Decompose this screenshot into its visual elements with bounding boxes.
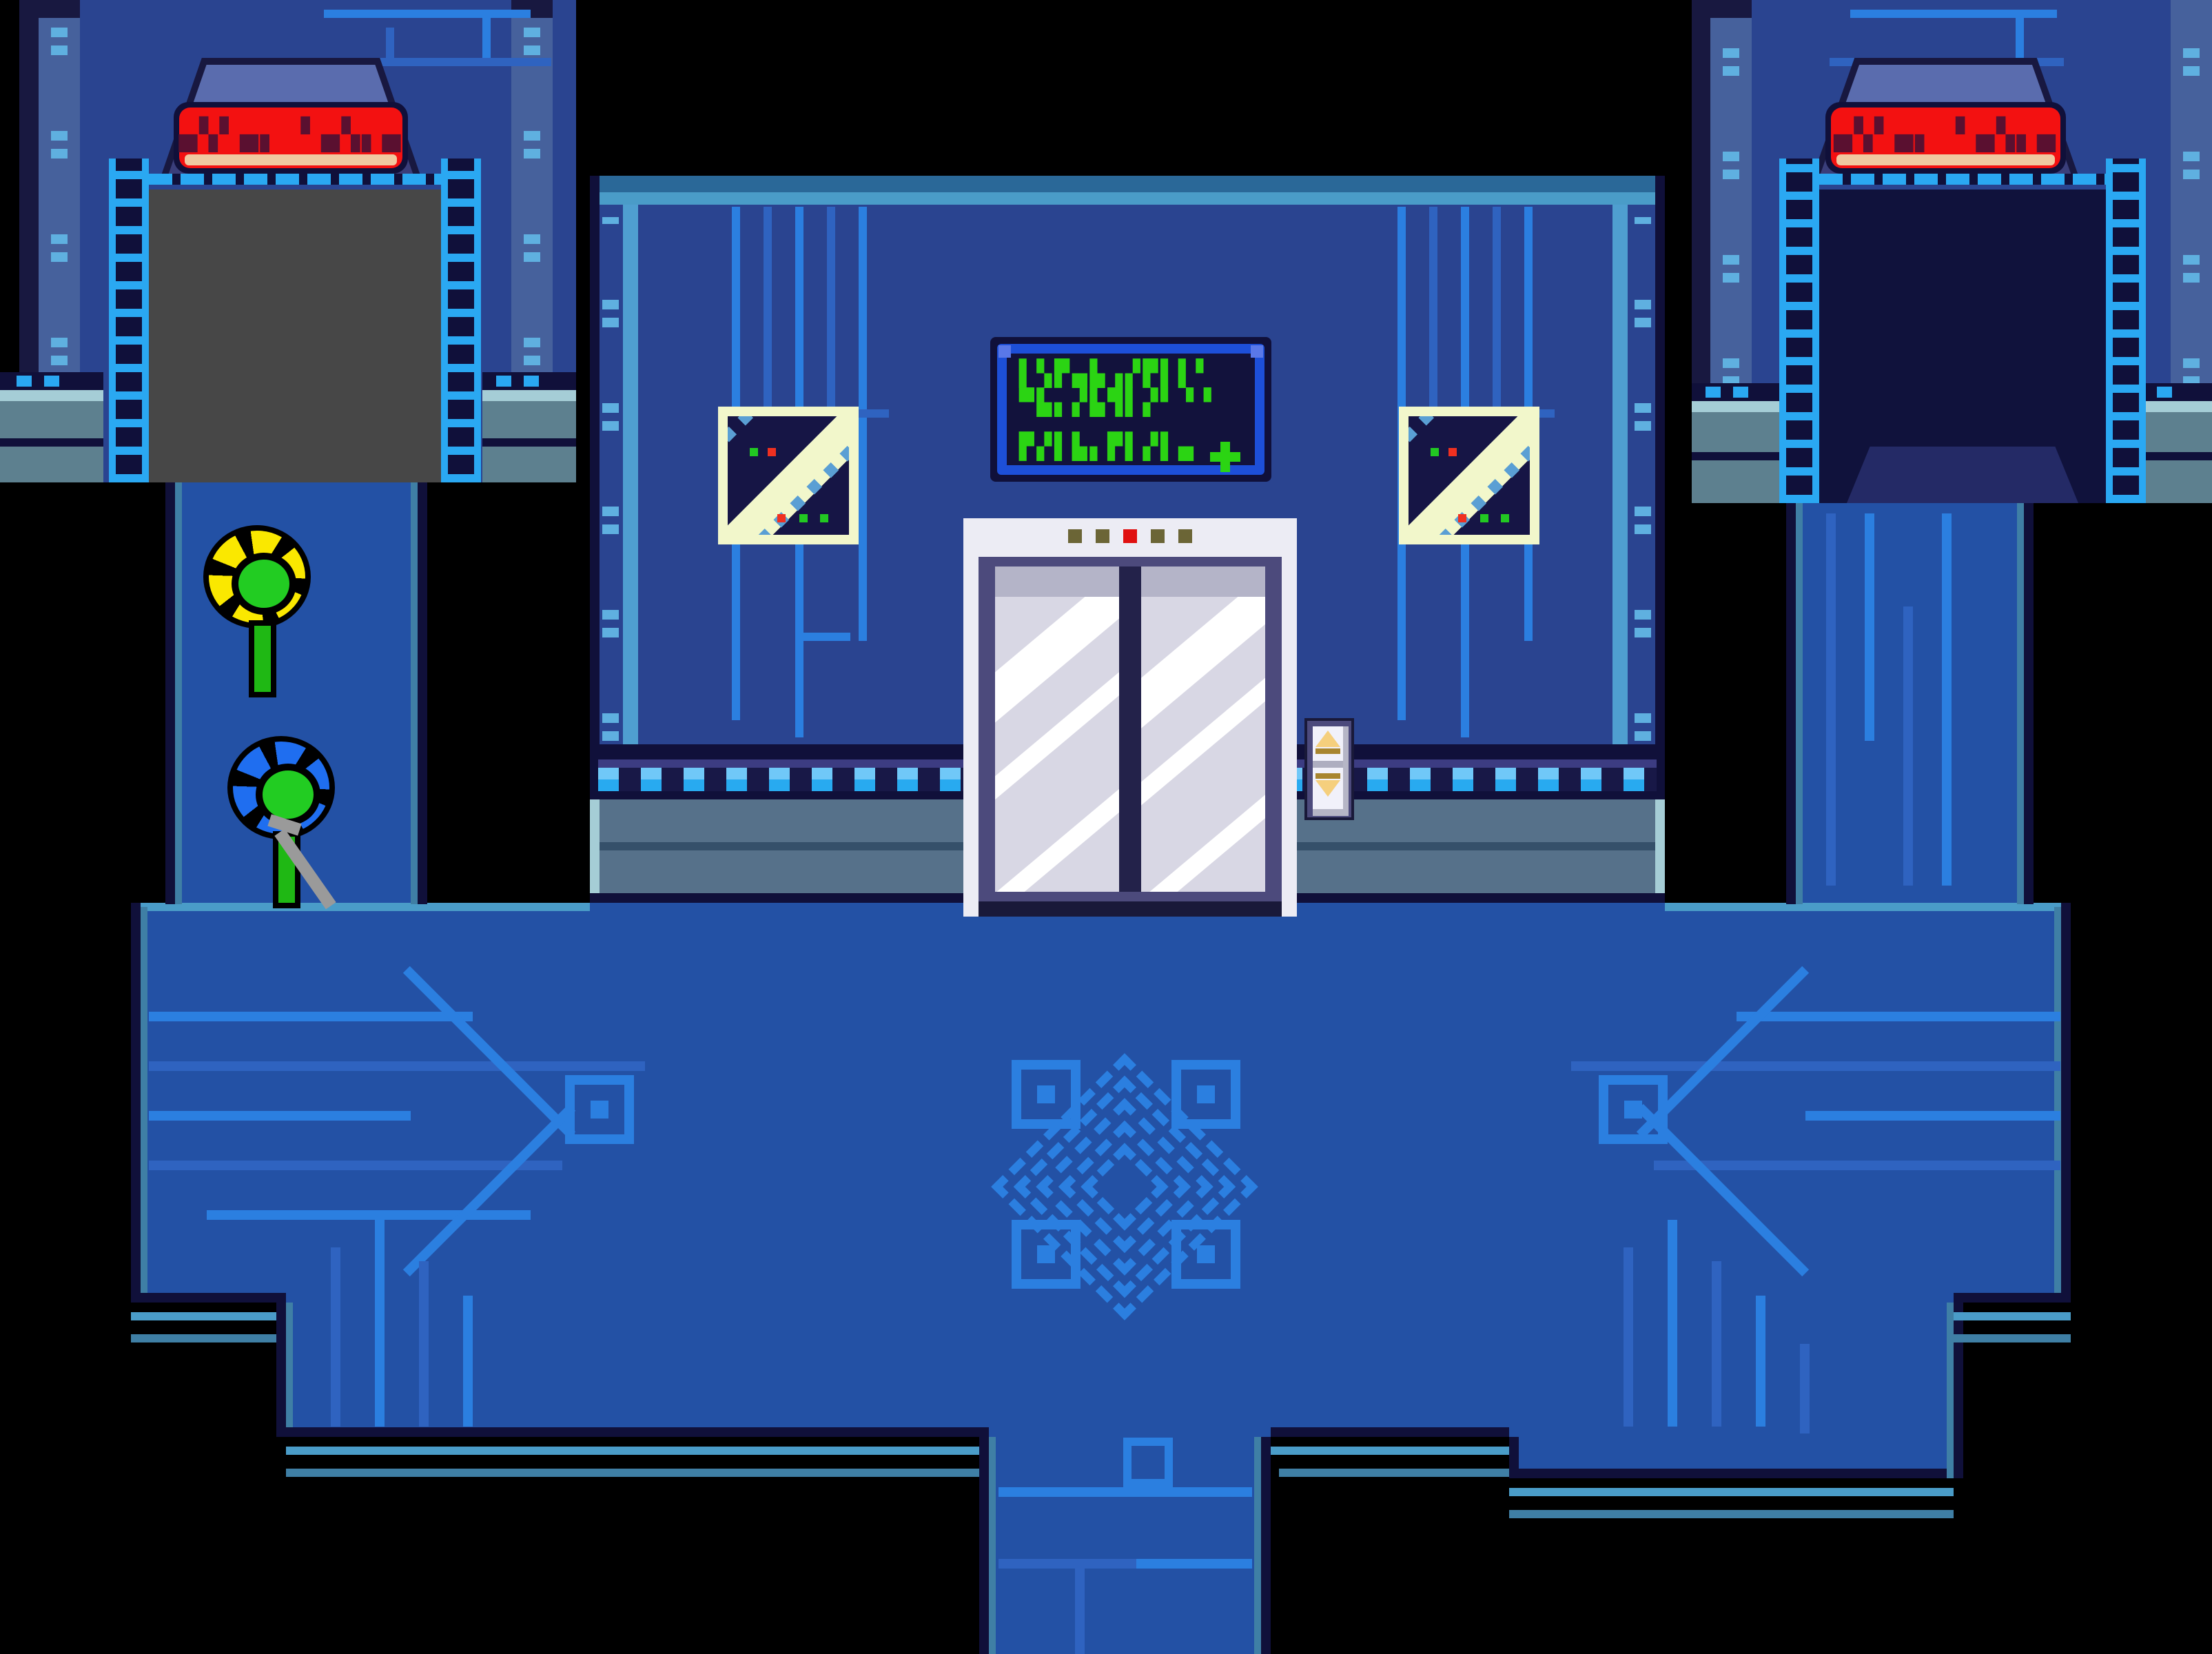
circuit-trace: [1654, 1161, 2060, 1170]
floor-edge: [286, 1447, 989, 1455]
wall-window: [718, 407, 859, 544]
red-indicator-light: [1123, 529, 1137, 543]
circuit-trace: [324, 10, 531, 18]
down-arrow-icon: [1315, 780, 1340, 797]
green-led: [799, 514, 808, 522]
floor-edge: [1509, 1469, 1954, 1478]
red-led: [777, 514, 786, 522]
floor-edge: [131, 1293, 286, 1303]
circuit-trace: [1903, 606, 1913, 886]
circuit-node: [1599, 1075, 1668, 1144]
floor-edge: [131, 1334, 286, 1342]
circuit-trace: [1624, 1247, 1633, 1427]
floor-edge: [286, 1427, 989, 1437]
yellow-flower[interactable]: [203, 525, 327, 691]
elevator-door-left[interactable]: [988, 566, 1119, 892]
pillar-cap: [1710, 0, 1752, 18]
green-led: [1480, 514, 1488, 522]
base-block: [2146, 383, 2212, 503]
red-led: [768, 448, 776, 456]
wall-baseboard-cap: [590, 799, 600, 893]
circuit-node: [1123, 1438, 1173, 1487]
circuit-trace: [1493, 207, 1501, 413]
meander-column: [2106, 159, 2146, 503]
corridor-edge: [165, 482, 175, 904]
doorway-ramp: [1847, 447, 2078, 503]
circuit-trace: [386, 28, 394, 58]
green-led: [820, 514, 828, 522]
red-led: [1448, 448, 1457, 456]
elevator-call-down-button[interactable]: [1314, 772, 1342, 801]
green-led: [750, 448, 758, 456]
circuit-trace: [207, 1210, 531, 1220]
floor-edge: [131, 1312, 286, 1320]
left-gate-module: ▄▚▘▄▖ ▘▄▚▖▄: [0, 0, 576, 482]
corridor-edge: [418, 482, 427, 904]
wall-pipe: [1612, 205, 1628, 744]
circuit-node: [1171, 1060, 1240, 1129]
olive-indicator-light: [1096, 529, 1109, 543]
wall-terminal-screen[interactable]: ▌▚▛▄▙▗▞▛▌▌▘ ▀▙▖▞▙▜▌▞▘▝▝ ▛▞▌▙▖▛▌▞▌▄: [990, 337, 1271, 482]
floor-edge: [2061, 903, 2071, 1303]
floor-edge: [1947, 1303, 1954, 1478]
circuit-trace: [1800, 1344, 1810, 1433]
circuit-trace: [1712, 1261, 1721, 1427]
circuit-trace: [2016, 18, 2024, 58]
olive-indicator-light: [1178, 529, 1192, 543]
flower-head: [203, 525, 311, 629]
floor-edge: [1954, 1303, 1963, 1478]
circuit-node: [565, 1075, 634, 1144]
wall-edge: [1655, 176, 1665, 903]
green-led: [1431, 448, 1439, 456]
elevator-call-up-button[interactable]: [1314, 729, 1342, 758]
floor-edge: [1261, 1437, 1271, 1654]
led-sign-rim: [185, 154, 397, 165]
green-led: [1501, 514, 1509, 522]
circuit-node: [1012, 1220, 1081, 1289]
meander-lintel: [149, 174, 441, 185]
circuit-trace: [419, 1261, 429, 1427]
led-sign-rim: [1836, 154, 2055, 165]
led-sign: ▄▚▘▄▖ ▘▄▚▖▄: [174, 102, 408, 174]
circuit-trace: [1942, 513, 1952, 886]
pillar-cap: [39, 0, 80, 18]
floor-edge: [1254, 1437, 1261, 1654]
floor-edge: [1954, 1312, 2071, 1320]
circuit-trace: [375, 1220, 385, 1427]
screen-corner-light: [1251, 345, 1263, 358]
terminal-text-line: ▀▙▖▞▙▜▌▞▘▝▝: [1019, 391, 1213, 416]
meander-column: [441, 159, 481, 482]
circuit-trace: [463, 1296, 473, 1427]
circuit-node: [1012, 1060, 1081, 1129]
elevator-door-right[interactable]: [1141, 566, 1272, 892]
circuit-trace: [1136, 1559, 1252, 1569]
floor-edge: [276, 1303, 286, 1437]
floor-edge: [1954, 1293, 2071, 1303]
left-doorway[interactable]: [149, 190, 441, 482]
circuit-trace: [795, 633, 850, 641]
floor-edge: [989, 1437, 996, 1654]
call-panel-divider: [1313, 761, 1343, 768]
floor-edge: [1665, 903, 2071, 911]
floor-edge: [286, 1469, 979, 1477]
right-gate-module: ▄▚▘▄▖ ▘▄▚▖▄: [1692, 0, 2212, 503]
circuit-trace: [1826, 513, 1836, 886]
meander-column: [109, 159, 149, 482]
flower-center: [232, 553, 296, 615]
floor-edge: [1954, 1334, 2071, 1342]
window-pane: [1409, 416, 1530, 535]
game-scene: ▌▚▛▄▙▗▞▛▌▌▘ ▀▙▖▞▙▜▌▞▘▝▝ ▛▞▌▙▖▛▌▞▌▄: [0, 0, 2212, 1654]
led-sign-text: ▄▚▘▄▖ ▘▄▚▖▄: [1825, 120, 2066, 150]
wall-window: [1399, 407, 1539, 544]
circuit-trace: [1865, 513, 1874, 741]
circuit-trace: [1668, 1220, 1677, 1427]
screen-corner-light: [999, 345, 1011, 358]
circuit-trace: [331, 1247, 340, 1427]
circuit-trace: [859, 207, 867, 641]
base-block: [482, 372, 576, 482]
floor-edge: [1509, 1510, 1954, 1518]
circuit-trace: [149, 1061, 645, 1071]
circuit-node: [1171, 1220, 1240, 1289]
blue-flower[interactable]: [227, 736, 351, 901]
circuit-trace: [1737, 1012, 2060, 1021]
circuit-trace: [999, 1559, 1136, 1569]
floor-edge: [1271, 1427, 1509, 1437]
main-floor: [286, 1303, 1954, 1437]
circuit-trace: [1850, 10, 2057, 18]
olive-indicator-light: [1151, 529, 1165, 543]
flower-center: [256, 764, 320, 826]
base-block: [0, 372, 103, 482]
floor-edge: [286, 1303, 293, 1437]
terminal-cursor-icon: [1210, 452, 1240, 462]
wall-top-edge: [590, 192, 1665, 205]
elevator[interactable]: [963, 518, 1297, 917]
floor-edge: [131, 903, 141, 1303]
wall-baseboard-cap: [1655, 799, 1665, 893]
corridor-edge: [1786, 503, 1796, 904]
wall-rivets: [602, 217, 619, 741]
circuit-trace: [149, 1012, 473, 1021]
floor-edge: [1279, 1469, 1509, 1477]
red-led: [1458, 514, 1466, 522]
terminal-text-line: ▌▚▛▄▙▗▞▛▌▌▘: [1019, 362, 1213, 387]
olive-indicator-light: [1068, 529, 1082, 543]
circuit-trace: [149, 1111, 411, 1121]
elevator-threshold: [979, 901, 1282, 917]
wall-pipe: [623, 205, 638, 744]
circuit-trace: [482, 18, 491, 58]
floor-edge: [979, 1437, 989, 1654]
elevator-call-panel: [1304, 718, 1354, 820]
base-block: [1692, 383, 1779, 503]
meander-lintel: [1819, 174, 2106, 185]
circuit-trace: [1805, 1111, 2060, 1121]
floor-edge: [1271, 1447, 1509, 1455]
wall-top-edge: [590, 176, 1665, 192]
circuit-trace: [149, 1161, 562, 1170]
circuit-trace: [1075, 1569, 1085, 1654]
floor-edge: [1509, 1488, 1954, 1496]
corridor-edge: [411, 482, 418, 904]
led-sign: ▄▚▘▄▖ ▘▄▚▖▄: [1825, 102, 2066, 174]
circuit-trace: [1571, 1061, 2060, 1071]
corridor-edge: [2017, 503, 2024, 904]
floor-edge: [131, 903, 590, 911]
led-sign-text: ▄▚▘▄▖ ▘▄▚▖▄: [174, 120, 408, 150]
corridor-edge: [175, 482, 182, 904]
flower-stem: [249, 620, 276, 697]
terminal-text-line: ▛▞▌▙▖▛▌▞▌▄: [1019, 435, 1196, 460]
up-arrow-icon: [1315, 731, 1340, 747]
floor-edge: [2054, 907, 2061, 1300]
corridor-edge: [1796, 503, 1803, 904]
meander-column: [1779, 159, 1819, 503]
window-pane: [728, 416, 849, 535]
elevator-indicator-lights: [963, 529, 1297, 544]
floor-edge: [141, 907, 147, 1303]
corridor-edge: [2024, 503, 2034, 904]
circuit-trace: [1756, 1296, 1765, 1427]
circuit-trace: [827, 207, 835, 413]
wall-rivets: [1635, 217, 1651, 741]
circuit-trace: [999, 1487, 1252, 1497]
